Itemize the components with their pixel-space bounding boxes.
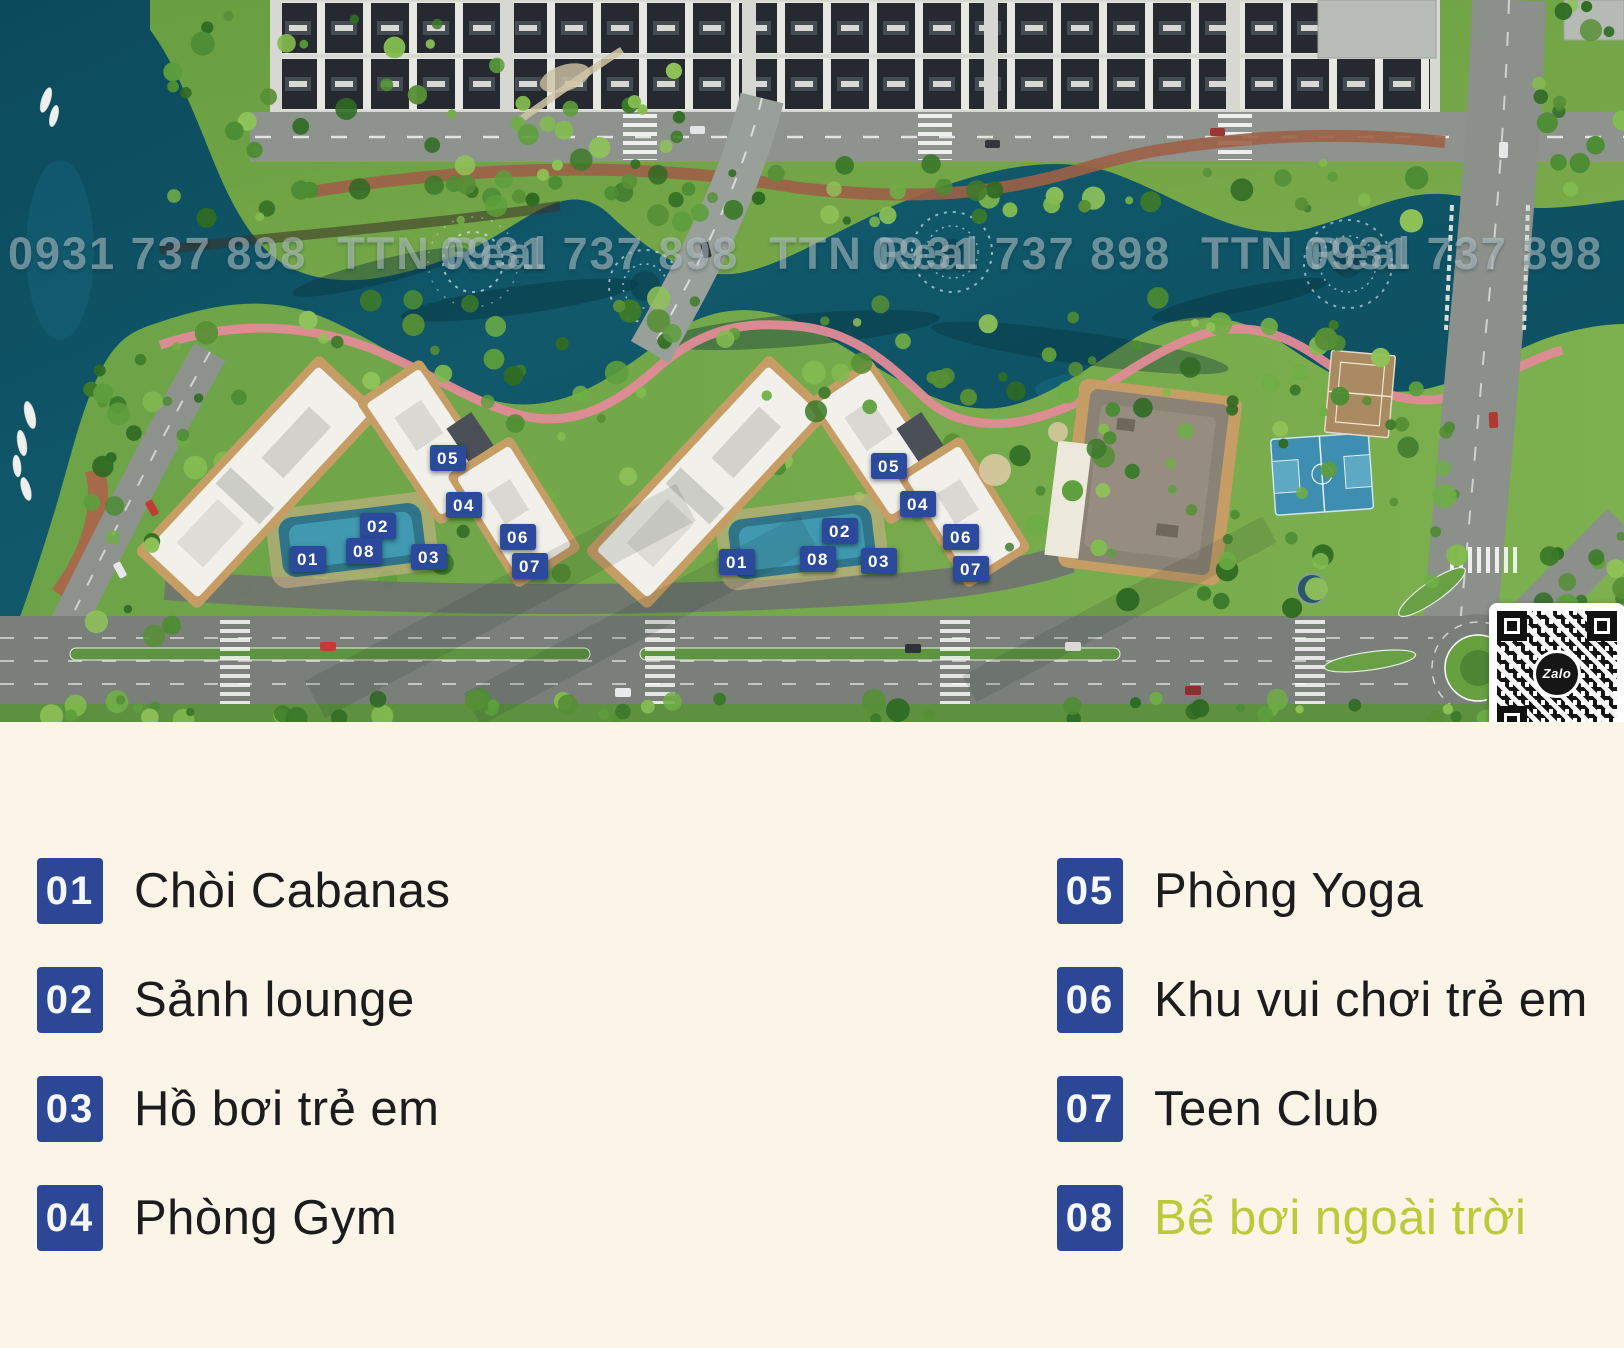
legend-item-08: 08 Bể bơi ngoài trời bbox=[1057, 1185, 1526, 1251]
legend-label: Phòng Yoga bbox=[1154, 863, 1423, 919]
legend-item-02: 02 Sảnh lounge bbox=[37, 967, 415, 1033]
legend-label: Bể bơi ngoài trời bbox=[1154, 1190, 1526, 1246]
legend-number-badge: 08 bbox=[1057, 1185, 1123, 1251]
zalo-logo-icon: Zalo bbox=[1533, 650, 1581, 698]
map-marker: 01 bbox=[290, 546, 326, 572]
map-marker: 02 bbox=[822, 518, 858, 544]
map-marker: 04 bbox=[446, 492, 482, 518]
legend-number-badge: 05 bbox=[1057, 858, 1123, 924]
amenities-legend: 01 Chòi Cabanas 02 Sảnh lounge 03 Hồ bơi… bbox=[0, 722, 1624, 1348]
map-marker: 06 bbox=[943, 524, 979, 550]
legend-number-badge: 04 bbox=[37, 1185, 103, 1251]
map-marker: 01 bbox=[719, 549, 755, 575]
legend-label: Phòng Gym bbox=[134, 1190, 397, 1246]
map-marker: 07 bbox=[953, 556, 989, 582]
legend-item-03: 03 Hồ bơi trẻ em bbox=[37, 1076, 440, 1142]
legend-label: Sảnh lounge bbox=[134, 972, 415, 1028]
map-marker: 07 bbox=[512, 553, 548, 579]
map-marker: 05 bbox=[430, 445, 466, 471]
legend-label: Khu vui chơi trẻ em bbox=[1154, 972, 1588, 1028]
map-marker: 04 bbox=[900, 491, 936, 517]
legend-item-07: 07 Teen Club bbox=[1057, 1076, 1379, 1142]
qr-pattern: Zalo bbox=[1497, 611, 1617, 736]
legend-number-badge: 06 bbox=[1057, 967, 1123, 1033]
legend-label: Hồ bơi trẻ em bbox=[134, 1081, 440, 1137]
legend-item-05: 05 Phòng Yoga bbox=[1057, 858, 1423, 924]
map-marker: 06 bbox=[500, 524, 536, 550]
legend-item-06: 06 Khu vui chơi trẻ em bbox=[1057, 967, 1588, 1033]
map-marker: 03 bbox=[411, 544, 447, 570]
legend-number-badge: 07 bbox=[1057, 1076, 1123, 1142]
legend-item-04: 04 Phòng Gym bbox=[37, 1185, 397, 1251]
qr-finder-icon bbox=[1587, 611, 1617, 641]
aerial-masterplan: 0931 737 898 TTN Real 0931 737 898 TTN R… bbox=[0, 0, 1624, 722]
legend-number-badge: 01 bbox=[37, 858, 103, 924]
legend-item-01: 01 Chòi Cabanas bbox=[37, 858, 451, 924]
legend-number-badge: 02 bbox=[37, 967, 103, 1033]
masterplan-page: 0931 737 898 TTN Real 0931 737 898 TTN R… bbox=[0, 0, 1624, 1348]
map-marker: 08 bbox=[346, 538, 382, 564]
map-graphic bbox=[0, 0, 1624, 722]
legend-label: Chòi Cabanas bbox=[134, 863, 451, 919]
qr-finder-icon bbox=[1497, 611, 1527, 641]
legend-label: Teen Club bbox=[1154, 1081, 1379, 1137]
map-marker: 02 bbox=[360, 513, 396, 539]
map-marker: 08 bbox=[800, 546, 836, 572]
legend-number-badge: 03 bbox=[37, 1076, 103, 1142]
map-marker: 05 bbox=[871, 453, 907, 479]
map-marker: 03 bbox=[861, 548, 897, 574]
